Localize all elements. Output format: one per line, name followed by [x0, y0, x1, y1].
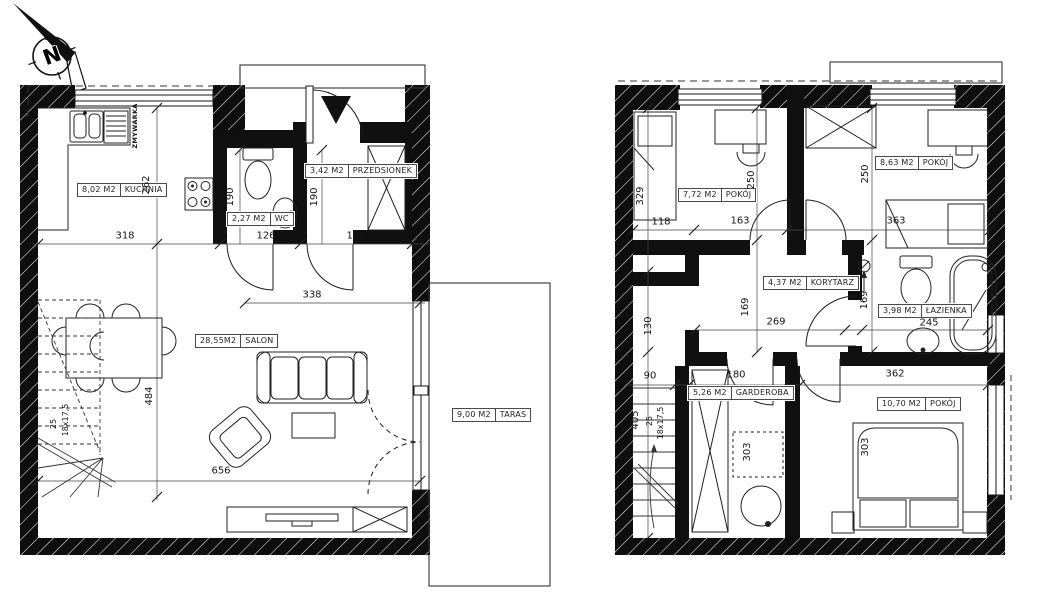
room-label-salon: 28,55M2 SALON — [195, 334, 278, 348]
dim-363: 363 — [886, 217, 905, 227]
room-area: 8,63 M2 — [876, 157, 919, 169]
room-name: PRZEDSIONEK — [349, 165, 416, 177]
kitchen-counter — [38, 108, 130, 230]
dim-484: 484 — [145, 386, 155, 405]
room-label-pokoj-3: 10,70 M2 POKÓJ — [877, 397, 961, 411]
room-label-korytarz: 4,37 M2 KORYTARZ — [763, 276, 859, 290]
room-name: ŁAZIENKA — [922, 305, 971, 317]
laundry-basket-icon — [741, 486, 781, 526]
toilet-tank — [243, 148, 273, 160]
dim-180: 180 — [726, 371, 745, 381]
dishwasher-label: ZMYWARKA — [131, 103, 139, 148]
plan-linework — [0, 0, 1043, 605]
floor-plan-canvas: N 8,02 M2 KUCHNIA 2,27 M2 WC 3,42 M2 PRZ… — [0, 0, 1043, 605]
room-name: SALON — [241, 335, 277, 347]
sofa — [257, 352, 367, 403]
dim-303-a: 303 — [743, 442, 753, 461]
dim-362: 362 — [885, 370, 904, 380]
stair-tread-label: 18x17,5 — [62, 404, 70, 437]
room-area: 3,42 M2 — [306, 165, 349, 177]
upper-staircase — [632, 388, 678, 528]
room-area: 3,98 M2 — [879, 305, 922, 317]
ground-doors — [227, 244, 420, 494]
room-area: 2,27 M2 — [228, 213, 271, 225]
dim-656: 656 — [211, 467, 230, 477]
dim-169-a: 169 — [741, 297, 751, 316]
desk-icon — [928, 110, 988, 146]
room-area: 8,02 M2 — [78, 184, 121, 196]
room-label-taras: 9,00 M2 TARAS — [452, 408, 531, 422]
dim-163: 163 — [730, 217, 749, 227]
nightstand-icon — [832, 512, 854, 533]
hall-wardrobe-icon — [368, 146, 405, 230]
room-name: POKÓJ — [926, 398, 960, 410]
nightstand-icon — [963, 512, 987, 533]
dim-250-b: 250 — [861, 164, 871, 183]
coffee-table — [292, 413, 335, 438]
entrance-door — [306, 86, 363, 143]
dim-190-a: 190 — [226, 187, 236, 206]
room-label-garderoba: 5,26 M2 GARDEROBA — [688, 386, 794, 400]
room-label-pokoj-1: 7,72 M2 POKÓJ — [678, 188, 756, 202]
room-area: 28,55M2 — [196, 335, 241, 347]
dim-269: 269 — [766, 318, 785, 328]
room-label-lazienka: 3,98 M2 ŁAZIENKA — [878, 304, 972, 318]
stair-steps-label: 25 — [50, 419, 58, 429]
room-name: POKÓJ — [722, 189, 756, 201]
desk-icon — [715, 110, 766, 144]
room-name: POKÓJ — [919, 157, 953, 169]
room-label-przedsionek: 3,42 M2 PRZEDSIONEK — [305, 164, 417, 178]
room-name: GARDEROBA — [732, 387, 793, 399]
ground-staircase — [38, 300, 115, 497]
dim-318: 318 — [115, 232, 134, 242]
bedroom2-furniture — [806, 106, 988, 248]
room-label-pokoj-2: 8,63 M2 POKÓJ — [875, 156, 953, 170]
dim-188: 188 — [346, 232, 365, 242]
stove-icon — [185, 178, 213, 210]
tv-bench — [227, 507, 407, 532]
room-label-kuchnia: 8,02 M2 KUCHNIA — [77, 183, 167, 197]
room-area: 5,26 M2 — [689, 387, 732, 399]
dim-190-b: 190 — [310, 187, 320, 206]
stair-tread-label-2: 18x17,5 — [657, 407, 665, 440]
room-label-wc: 2,27 M2 WC — [227, 212, 294, 226]
ground-dimension-lines — [33, 103, 430, 502]
armchair — [205, 403, 274, 472]
dim-126: 126 — [256, 232, 275, 242]
room-area: 7,72 M2 — [679, 189, 722, 201]
dim-338: 338 — [302, 291, 321, 301]
stair-steps-label-2: 25 — [646, 416, 654, 426]
dim-130: 130 — [644, 316, 654, 335]
ground-floor-plan — [20, 65, 550, 586]
dim-90: 90 — [644, 372, 657, 382]
dim-329: 329 — [636, 186, 646, 205]
dim-245: 245 — [919, 319, 938, 329]
room-area: 10,70 M2 — [878, 398, 926, 410]
room-name: WC — [271, 213, 293, 225]
dim-250-a: 250 — [747, 170, 757, 189]
bedroom1-furniture — [634, 110, 766, 220]
tv-icon — [266, 514, 338, 521]
room-name: TARAS — [496, 409, 531, 421]
chair-icon — [737, 152, 765, 166]
dim-303-b: 303 — [861, 437, 871, 456]
room-name: KORYTARZ — [807, 277, 858, 289]
room-area: 4,37 M2 — [764, 277, 807, 289]
terrace-outline — [429, 283, 550, 586]
chair-icon — [950, 154, 978, 168]
dim-262: 262 — [142, 175, 152, 194]
toilet-icon — [245, 161, 271, 199]
toilet-icon — [901, 269, 931, 307]
dining-table — [52, 304, 176, 392]
room-area: 9,00 M2 — [453, 409, 496, 421]
dim-118: 118 — [651, 218, 670, 228]
dim-169-b: 169 — [860, 290, 870, 309]
entrance-arrow-icon — [321, 96, 351, 124]
terrace-doors — [368, 390, 420, 494]
dim-405: 405 — [631, 410, 641, 429]
bedroom3-furniture — [832, 423, 987, 533]
ground-windows — [75, 90, 429, 490]
